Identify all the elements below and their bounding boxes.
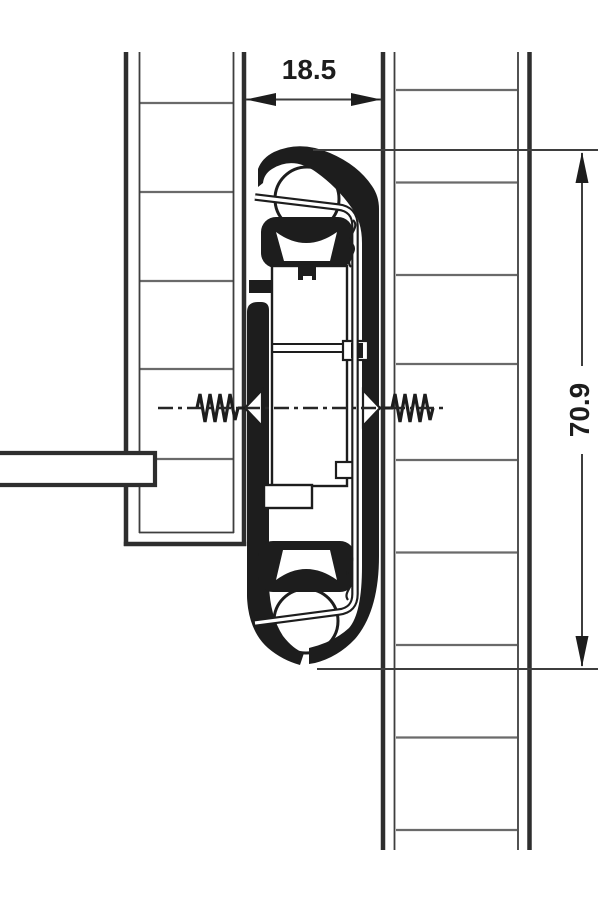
- right-panel: [383, 52, 530, 850]
- ball-retainer-top: [261, 217, 353, 268]
- right-panel-hatch-lines: [396, 90, 517, 830]
- width-arrow-right: [351, 93, 381, 106]
- dimension-width: 18.5: [246, 54, 381, 106]
- width-dimension-label: 18.5: [282, 54, 337, 85]
- ball-retainer-bottom: [258, 541, 355, 592]
- height-dimension-label: 70.9: [564, 383, 595, 438]
- drawer-slide-cross-section: 18.5 70.9: [0, 0, 600, 900]
- slide-cross-section: [245, 146, 380, 665]
- drawer-rail-tab: [249, 280, 271, 293]
- height-arrow-bottom: [576, 636, 589, 667]
- drawer-bottom-bar: [0, 453, 155, 485]
- width-arrow-left: [246, 93, 276, 106]
- technical-drawing-canvas: 18.5 70.9: [0, 0, 600, 900]
- profile-foot-box: [264, 485, 312, 508]
- height-arrow-top: [576, 152, 589, 183]
